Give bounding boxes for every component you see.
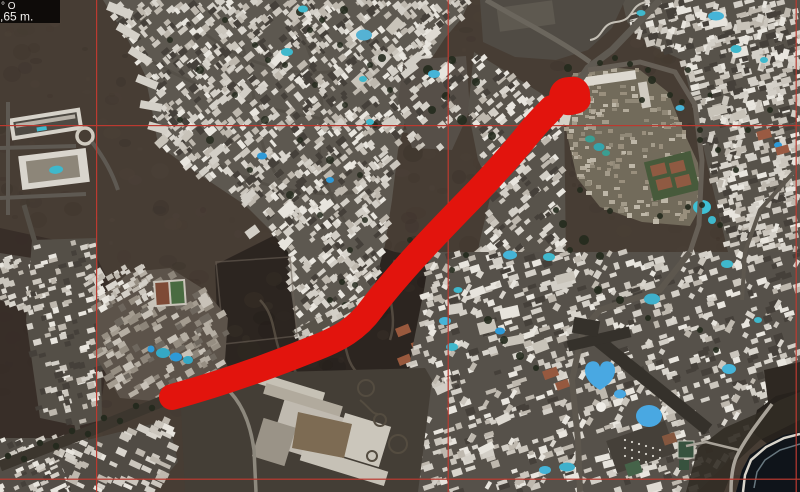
svg-text:,65 m.: ,65 m. [0,10,33,24]
